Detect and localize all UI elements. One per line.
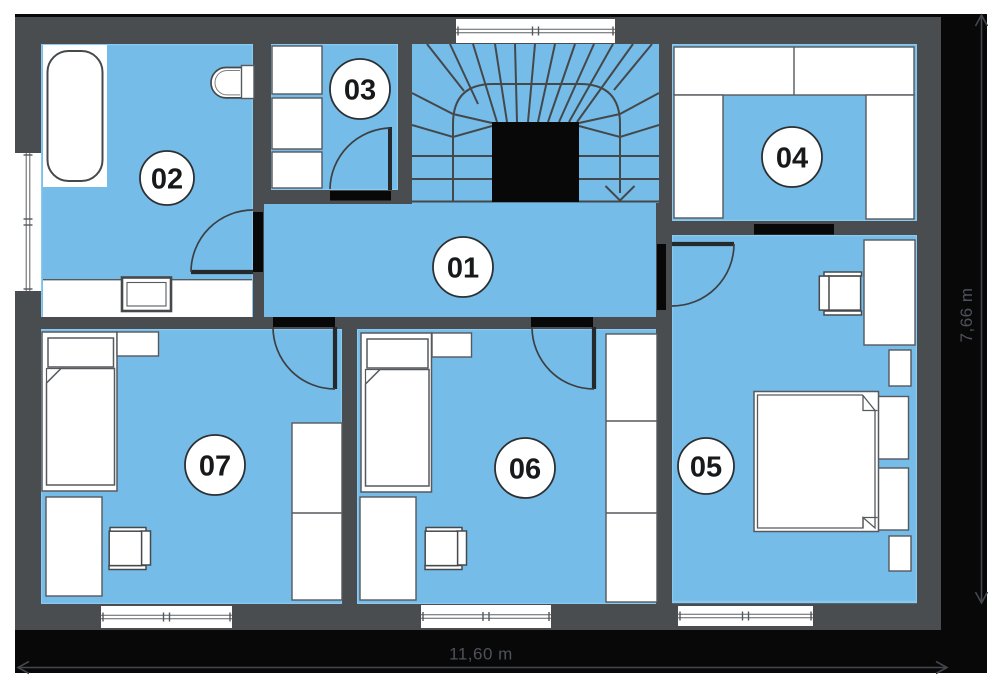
svg-text:11,60 m: 11,60 m — [449, 645, 513, 664]
svg-text:7,66 m: 7,66 m — [957, 288, 976, 343]
svg-text:03: 03 — [344, 75, 376, 107]
svg-text:07: 07 — [199, 451, 231, 483]
svg-text:06: 06 — [509, 454, 541, 486]
svg-text:05: 05 — [690, 452, 722, 484]
svg-text:02: 02 — [151, 164, 183, 196]
svg-text:01: 01 — [447, 253, 479, 285]
svg-text:04: 04 — [776, 143, 808, 175]
